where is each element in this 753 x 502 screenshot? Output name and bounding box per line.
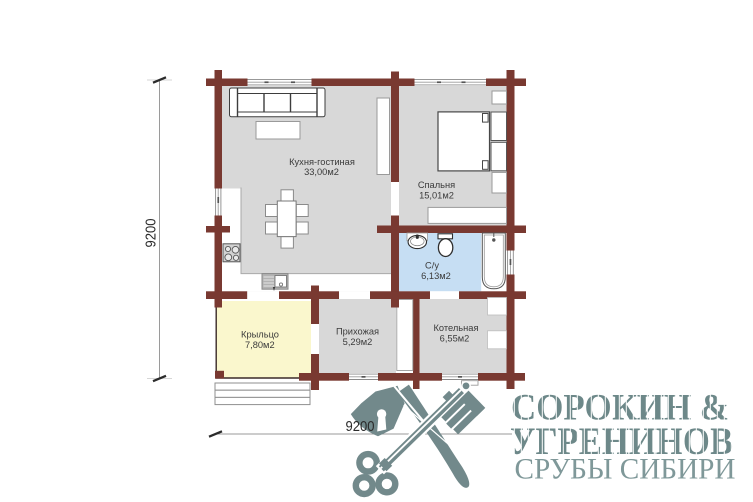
svg-text:Кухня-гостиная: Кухня-гостиная: [289, 157, 355, 167]
svg-text:9200: 9200: [346, 418, 375, 435]
svg-text:Спальня: Спальня: [418, 180, 455, 190]
svg-text:С/у: С/у: [425, 261, 439, 271]
svg-text:5,29м2: 5,29м2: [343, 337, 373, 347]
svg-text:Крыльцо: Крыльцо: [241, 330, 279, 340]
svg-text:33,00м2: 33,00м2: [304, 167, 339, 177]
svg-text:Прихожая: Прихожая: [336, 327, 379, 337]
svg-text:6,13м2: 6,13м2: [421, 271, 451, 281]
svg-text:15,01м2: 15,01м2: [419, 190, 454, 200]
svg-text:6,55м2: 6,55м2: [440, 333, 470, 343]
svg-text:7,80м2: 7,80м2: [245, 340, 275, 350]
svg-text:9200: 9200: [142, 219, 159, 248]
svg-text:Котельная: Котельная: [433, 323, 478, 333]
svg-text:СРУБЫ СИБИРИ: СРУБЫ СИБИРИ: [515, 453, 736, 486]
